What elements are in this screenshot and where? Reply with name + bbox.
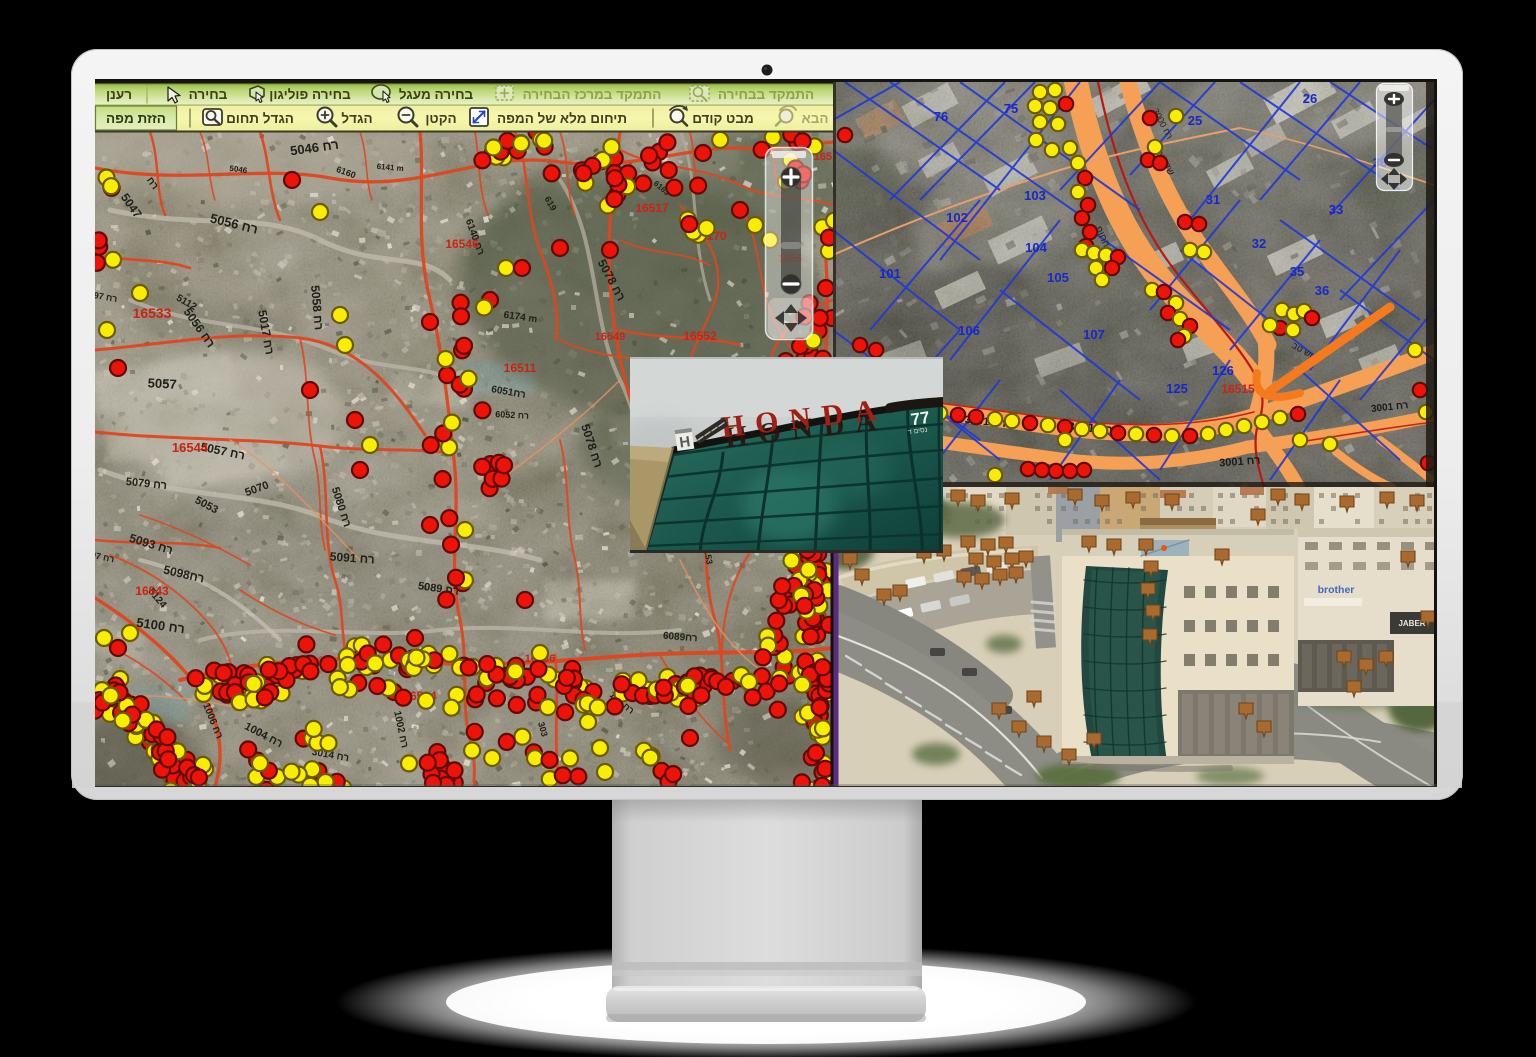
svg-text:16544: 16544 xyxy=(172,440,209,455)
svg-text:126: 126 xyxy=(1212,363,1234,378)
svg-text:26: 26 xyxy=(1303,91,1317,106)
svg-text:75: 75 xyxy=(1004,101,1018,116)
svg-text:16543: 16543 xyxy=(135,584,169,598)
svg-text:105: 105 xyxy=(1047,270,1069,285)
svg-text:16533: 16533 xyxy=(133,305,172,321)
svg-text:102: 102 xyxy=(946,210,968,225)
svg-text:104: 104 xyxy=(1025,240,1047,255)
svg-text:6052 רח: 6052 רח xyxy=(495,409,529,421)
svg-text:הזזת מפה: הזזת מפה xyxy=(106,111,166,126)
svg-text:103: 103 xyxy=(1024,188,1046,203)
svg-text:36: 36 xyxy=(1315,283,1329,298)
svg-text:תיחום מלא של המפה: תיחום מלא של המפה xyxy=(497,111,627,126)
svg-text:התמקד בבחירה: התמקד בבחירה xyxy=(718,87,814,102)
svg-text:הקטן: הקטן xyxy=(425,111,456,126)
svg-text:הגדל: הגדל xyxy=(341,111,372,126)
svg-text:הגדל תחום: הגדל תחום xyxy=(226,111,294,126)
svg-text:16517: 16517 xyxy=(635,201,669,215)
svg-text:brother: brother xyxy=(1318,584,1355,596)
svg-text:31: 31 xyxy=(1206,192,1220,207)
svg-text:16552: 16552 xyxy=(683,329,717,343)
svg-text:107: 107 xyxy=(1083,327,1105,342)
svg-text:125: 125 xyxy=(1166,381,1188,396)
svg-text:77: 77 xyxy=(910,408,931,429)
svg-text:הבא: הבא xyxy=(802,111,829,126)
svg-text:16546: 16546 xyxy=(445,237,479,251)
svg-text:רענן: רענן xyxy=(106,87,132,102)
svg-text:25: 25 xyxy=(1188,113,1202,128)
svg-text:בחירה פוליגון: בחירה פוליגון xyxy=(269,87,351,102)
svg-text:16511: 16511 xyxy=(504,361,537,375)
svg-text:101: 101 xyxy=(879,266,901,281)
svg-text:106: 106 xyxy=(958,323,980,338)
svg-text:16515: 16515 xyxy=(1221,382,1255,396)
svg-text:בחירה מעגל: בחירה מעגל xyxy=(399,87,474,102)
svg-text:מבט קודם: מבט קודם xyxy=(692,111,754,126)
svg-text:32: 32 xyxy=(1252,236,1266,251)
svg-text:76: 76 xyxy=(934,109,948,124)
svg-text:התמקד במרכז הבחירה: התמקד במרכז הבחירה xyxy=(523,87,662,102)
svg-text:בחירה: בחירה xyxy=(189,87,228,102)
svg-text:33: 33 xyxy=(1329,202,1343,217)
svg-text:5057: 5057 xyxy=(147,375,177,391)
svg-text:35: 35 xyxy=(1290,264,1304,279)
svg-text:16549: 16549 xyxy=(595,331,626,343)
